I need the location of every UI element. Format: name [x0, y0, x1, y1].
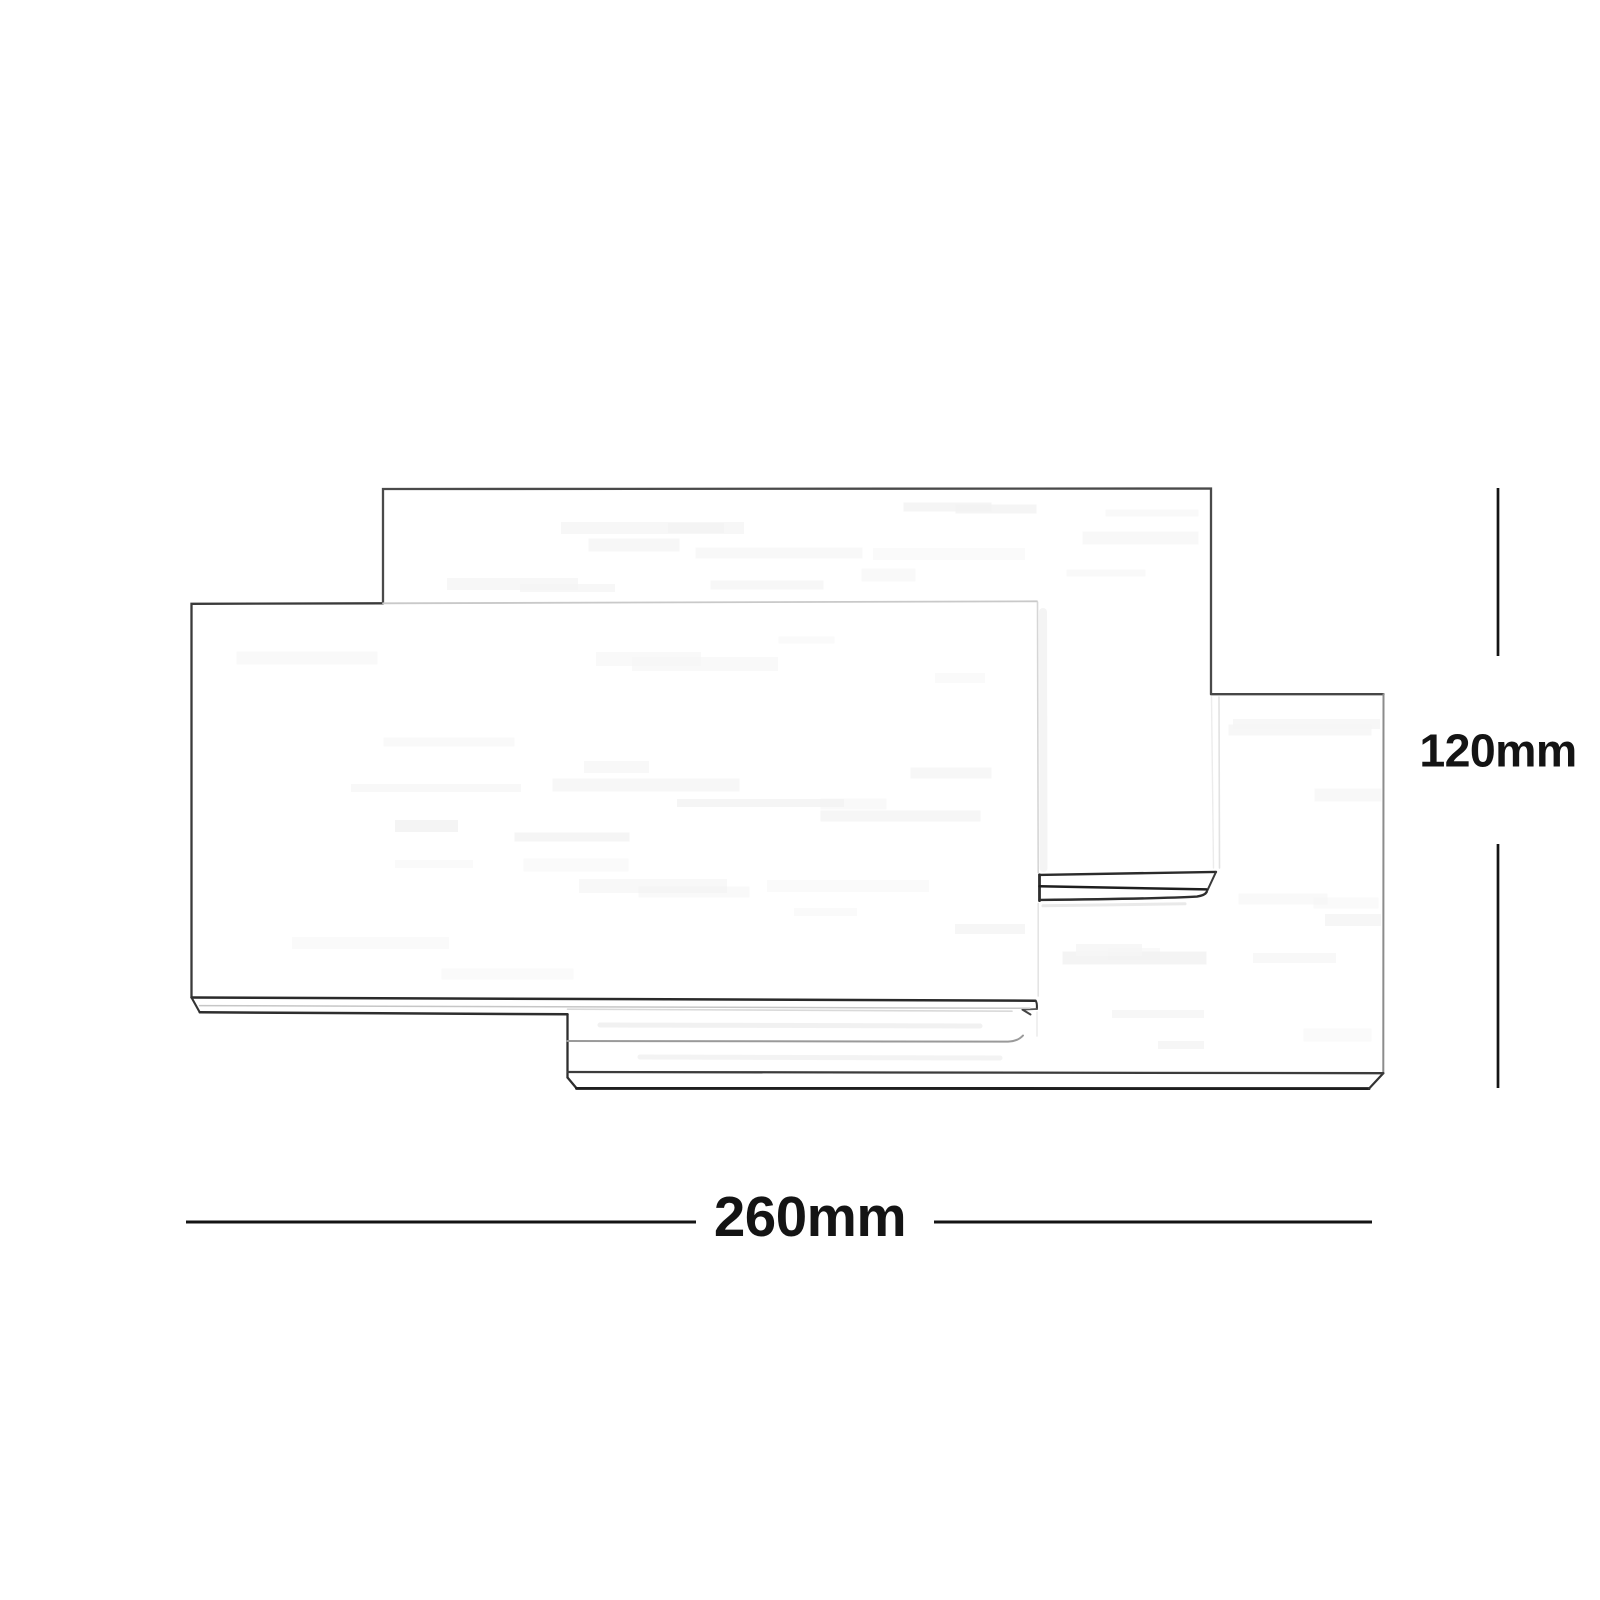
svg-text:120mm: 120mm: [1419, 725, 1576, 777]
svg-text:260mm: 260mm: [714, 1185, 906, 1248]
